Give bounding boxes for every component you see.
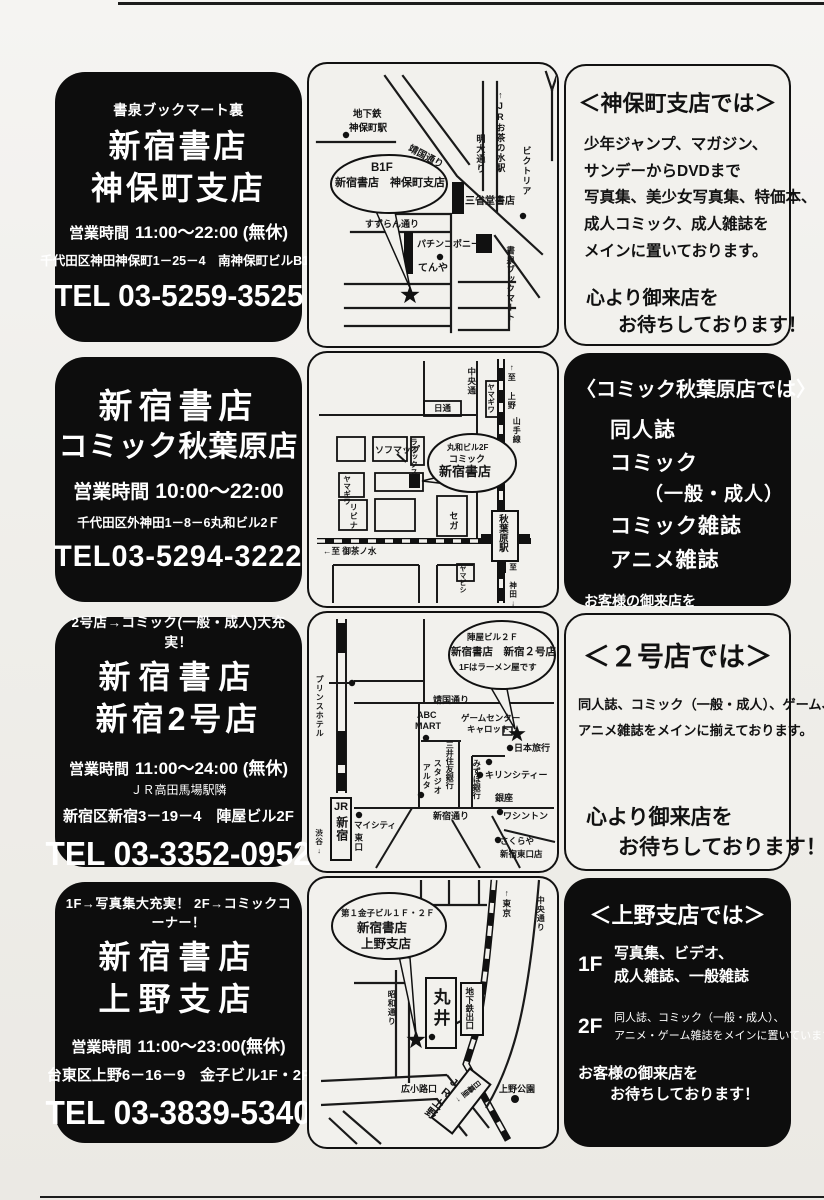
map-label-nittsu: 日通 bbox=[434, 404, 451, 414]
closing-line1: お客様の御来店を bbox=[578, 1062, 779, 1083]
store-card-shinjuku2: 2号店→コミック(一般・成人)大充実！ 新宿書店 新宿2号店 営業時間11:00… bbox=[55, 617, 302, 867]
store-address: 千代田区神田神保町1－25－4 南神保町ビルB1F bbox=[40, 250, 316, 269]
map-label-to-shibuya: 渋谷↓ bbox=[314, 829, 323, 856]
map-balloon-note: 1Fはラーメン屋です bbox=[459, 663, 537, 673]
closing-line1: 心より御来店を bbox=[586, 283, 777, 310]
info-body: 少年ジャンプ、マガジン、 サンデーからDVDまで 写真集、美少女写真集、特価本、… bbox=[578, 132, 777, 265]
store-card-akihabara: 新宿書店 コミック秋葉原店 営業時間10:00～22:00 千代田区外神田1－8… bbox=[55, 357, 302, 602]
map-label-chuo-dori: 中央通 bbox=[466, 367, 476, 396]
map-label-ueno-park: 上野公園 bbox=[499, 1084, 535, 1094]
info-title: ＜上野支店では＞ bbox=[576, 898, 779, 930]
info-line: メインに置いております。 bbox=[584, 239, 777, 266]
info-line: 写真集、美少女写真集、特価本、 bbox=[584, 185, 777, 212]
store-address: 千代田区外神田1－8－6丸和ビル2Ｆ bbox=[77, 512, 280, 531]
map-label-yamagiwa-2: ヤマギワ bbox=[342, 475, 351, 505]
info-line: サンデーからDVDまで bbox=[584, 159, 777, 186]
info-title: 〈コミック秋葉原店では〉 bbox=[576, 373, 779, 402]
store-name-line2: 新宿2号店 bbox=[96, 699, 262, 741]
store-tagline: 書泉ブックマート裏 bbox=[113, 100, 244, 120]
map-label-nihon-ryoko: 日本旅行 bbox=[514, 743, 550, 753]
info-item: コミック bbox=[610, 447, 779, 480]
map-label-suzuran-dori: すずらん通り bbox=[365, 219, 419, 229]
floor2-line: 同人誌、コミック（一般・成人）、 bbox=[614, 1009, 824, 1028]
map-label-shosen-bookmart: 書泉ブックマート bbox=[505, 246, 515, 322]
info-line: 同人誌、コミック（一般・成人）、ゲーム、 bbox=[578, 692, 777, 718]
map-balloon-building: 丸和ビル2F bbox=[447, 443, 488, 452]
store-name-line2: 神保町支店 bbox=[91, 168, 266, 210]
map-label-jr: JR bbox=[334, 801, 348, 814]
map-label-yamagiwa-1: ヤマギワ bbox=[486, 383, 495, 413]
store-hours: 営業時間11:00～22:00 (無休) bbox=[69, 218, 288, 243]
map-balloon-store: 新宿書店 bbox=[439, 465, 491, 480]
map-balloon-store2: 上野支店 bbox=[361, 937, 411, 951]
map-label-akihabara-station: 秋葉原駅 bbox=[496, 514, 507, 552]
map-label-jr-ochanomizu: ↑JRお茶の水駅 bbox=[495, 90, 505, 173]
map-label-pachinko-pony: パチンコポニー bbox=[417, 239, 480, 249]
map-label-tenya: てんや bbox=[418, 263, 448, 275]
store-location-star-icon bbox=[401, 285, 420, 303]
map-label-sanseido: 三省堂書店 bbox=[465, 196, 515, 208]
railway-segments bbox=[337, 623, 346, 791]
floor2-text: 同人誌、コミック（一般・成人）、 アニメ・ゲーム雑誌をメインに置いています。 bbox=[614, 1009, 824, 1046]
map-label-to-kanda: 至 神田↓ bbox=[508, 563, 517, 608]
closing-line2: お待ちしております！ bbox=[586, 831, 777, 861]
map-jimbocho-drawing bbox=[309, 64, 556, 345]
info-item: コミック雑誌 bbox=[610, 510, 779, 543]
map-label-mart: MART bbox=[415, 721, 441, 731]
store-tagline: 2号店→コミック(一般・成人)大充実！ bbox=[61, 611, 296, 651]
map-balloon-building: 第１金子ビル１Ｆ・２Ｆ bbox=[341, 909, 435, 919]
map-label-livina: リビナ bbox=[349, 503, 358, 530]
map-label-sakuraya-2: 新宿東口店 bbox=[500, 850, 543, 860]
store-tel: TEL 03-3352-0952 bbox=[46, 835, 311, 873]
info-card-shinjuku2: ＜２号店では＞ 同人誌、コミック（一般・成人）、ゲーム、 アニメ雑誌をメインに揃… bbox=[564, 613, 791, 871]
hours-label: 営業時間 bbox=[69, 225, 129, 242]
map-label-yamabishi: ヤマビシ bbox=[459, 565, 466, 593]
info-card-jimbocho: ＜神保町支店では＞ 少年ジャンプ、マガジン、 サンデーからDVDまで 写真集、美… bbox=[564, 64, 791, 346]
floor2-line: アニメ・ゲーム雑誌をメインに置いています。 bbox=[614, 1027, 824, 1046]
closing-line2: お待ちしております！ bbox=[578, 1083, 779, 1104]
map-label-shinjuku-dori: 新宿通り bbox=[433, 811, 469, 821]
info-line: 成人コミック、成人雑誌を bbox=[584, 212, 777, 239]
map-balloon-store1: 新宿書店 bbox=[357, 921, 407, 935]
map-balloon-floor: B1F bbox=[371, 162, 393, 175]
info-item: 同人誌 bbox=[610, 414, 779, 447]
store-name-line2: コミック秋葉原店 bbox=[59, 429, 299, 467]
map-label-meidai-dori: 明大通り bbox=[475, 134, 485, 174]
map-ueno: 第１金子ビル１Ｆ・２Ｆ 新宿書店 上野支店 ↑東京 中央通り 昭和通り 丸井 地… bbox=[307, 876, 559, 1149]
floor1-row: 1F 写真集、ビデオ、 成人雑誌、一般雑誌 bbox=[576, 942, 779, 989]
closing-line1: お客様の御来店を bbox=[584, 591, 779, 611]
map-label-washington: ワシントン bbox=[503, 811, 548, 821]
map-label-game-center-1: ゲームセンター bbox=[461, 714, 520, 724]
hours-label: 営業時間 bbox=[69, 761, 129, 778]
map-label-sakuraya-1: さくらや bbox=[500, 837, 534, 847]
hours-label: 営業時間 bbox=[71, 1039, 131, 1056]
hours-value: 11:00～22:00 (無休) bbox=[135, 223, 288, 242]
info-item-list: 同人誌 コミック （一般・成人） コミック雑誌 アニメ雑誌 bbox=[576, 414, 779, 577]
map-balloon-building: 陣屋ビル２Ｆ bbox=[467, 633, 518, 643]
map-label-hirokoji-exit: 広小路口 bbox=[401, 1084, 437, 1094]
map-label-ginza: 銀座 bbox=[495, 793, 513, 803]
map-balloon-comic: コミック bbox=[449, 454, 485, 464]
map-label-mizuho-bank: みずほ銀行 bbox=[472, 759, 481, 799]
floor1-text: 写真集、ビデオ、 成人雑誌、一般雑誌 bbox=[614, 942, 749, 989]
info-item: アニメ雑誌 bbox=[610, 544, 779, 577]
map-label-yamanote-line: 山手線 bbox=[512, 417, 521, 444]
info-title: ＜神保町支店では＞ bbox=[578, 86, 777, 118]
map-label-marui: 丸井 bbox=[430, 988, 450, 1030]
store-name-line1: 新宿書店 bbox=[99, 385, 259, 429]
info-title: ＜２号店では＞ bbox=[578, 635, 777, 674]
info-closing: お客様の御来店を お待ちしております！ bbox=[576, 1062, 779, 1104]
hours-value: 11:00～24:00 (無休) bbox=[135, 759, 288, 778]
map-label-subway-line2: 神保町駅 bbox=[349, 124, 387, 135]
map-jimbocho: 地下鉄 神保町駅 靖国通り 明大通り ↑JRお茶の水駅 ビクトリア B1F 新宿… bbox=[307, 62, 559, 348]
map-label-shinjuku-station: 新宿 bbox=[334, 816, 348, 842]
map-label-subway-exit: 地下鉄出口 bbox=[464, 987, 474, 1030]
store-hours: 営業時間10:00～22:00 bbox=[73, 475, 283, 505]
map-label-alta: アルタ bbox=[422, 763, 431, 790]
store-name-line1: 新宿書店 bbox=[98, 657, 258, 699]
map-label-abc: ABC bbox=[417, 710, 437, 720]
poi-dot-victoria bbox=[520, 213, 526, 219]
store-tel: TEL 03-3839-5340 bbox=[46, 1094, 311, 1132]
floor1-label: 1F bbox=[576, 953, 614, 977]
scan-artifact-top bbox=[118, 2, 824, 5]
map-label-studio: スタジオ bbox=[433, 759, 442, 795]
closing-line1: 心より御来店を bbox=[586, 801, 777, 831]
map-label-laox: ラオックス bbox=[409, 438, 418, 476]
map-label-prince-hotel: プリンスホテル bbox=[315, 675, 324, 738]
store-name-line1: 新宿書店 bbox=[108, 126, 248, 168]
info-body: 同人誌、コミック（一般・成人）、ゲーム、 アニメ雑誌をメインに揃えております。 bbox=[578, 692, 777, 743]
ad-grid: 書泉ブックマート裏 新宿書店 神保町支店 営業時間11:00～22:00 (無休… bbox=[55, 62, 791, 1149]
map-label-victoria: ビクトリア bbox=[521, 146, 531, 196]
store-note: ＪＲ高田馬場駅隣 bbox=[130, 781, 226, 798]
map-label-subway-line1: 地下鉄 bbox=[353, 110, 382, 121]
store-card-ueno: 1F→写真集大充実！ 2F→コミックコーナー！ 新宿書店 上野支店 営業時間11… bbox=[55, 882, 302, 1143]
store-hours: 営業時間11:00～24:00 (無休) bbox=[69, 754, 288, 779]
balloon-tail bbox=[399, 956, 416, 1035]
poi-dot-tenya bbox=[437, 254, 443, 260]
info-card-akihabara: 〈コミック秋葉原店では〉 同人誌 コミック （一般・成人） コミック雑誌 アニメ… bbox=[564, 353, 791, 606]
info-line: アニメ雑誌をメインに揃えております。 bbox=[578, 718, 777, 744]
floor2-label: 2F bbox=[576, 1015, 614, 1039]
store-name-line2: 上野支店 bbox=[98, 979, 258, 1021]
store-card-jimbocho: 書泉ブックマート裏 新宿書店 神保町支店 営業時間11:00～22:00 (無休… bbox=[55, 72, 302, 342]
floor1-line: 写真集、ビデオ、 bbox=[614, 942, 749, 965]
map-label-sega: セガ bbox=[448, 511, 458, 531]
hours-value: 10:00～22:00 bbox=[155, 480, 283, 503]
map-label-chuo-dori: 中央通り bbox=[536, 896, 545, 932]
poi-dots bbox=[349, 680, 513, 843]
map-akihabara: 中央通 ヤマギワ 日通 ↑至 上野 山手線 ソフマップ ラオックス 丸和ビル2F… bbox=[307, 351, 559, 608]
map-label-to-ueno: ↑至 上野 bbox=[507, 363, 516, 410]
store-hours: 営業時間11:00～23:00(無休) bbox=[71, 1032, 285, 1057]
map-label-to-ochanomizu: ←至 御茶ノ水 bbox=[323, 547, 376, 557]
info-card-ueno: ＜上野支店では＞ 1F 写真集、ビデオ、 成人雑誌、一般雑誌 2F 同人誌、コミ… bbox=[564, 878, 791, 1147]
store-tel: TEL03-5294-3222 bbox=[54, 540, 302, 574]
store-tagline: 1F→写真集大充実！ 2F→コミックコーナー！ bbox=[61, 893, 296, 931]
map-label-yasukuni-dori: 靖国通り bbox=[433, 695, 469, 705]
closing-line2: お待ちしております！ bbox=[586, 310, 777, 337]
map-balloon-store: 新宿書店 新宿２号店 bbox=[451, 646, 556, 658]
store-name-line1: 新宿書店 bbox=[98, 937, 258, 979]
map-label-kirin-city: キリンシティー bbox=[485, 770, 547, 780]
scanned-ad-page: { "rows": [ { "store": { "tagline": "書泉ブ… bbox=[0, 0, 824, 1200]
hours-label: 営業時間 bbox=[73, 482, 149, 503]
scan-artifact-bottom bbox=[40, 1196, 824, 1198]
map-label-showa-dori: 昭和通り bbox=[387, 990, 396, 1026]
store-tel: TEL 03-5259-3525 bbox=[54, 278, 303, 314]
map-label-mycity: マイシティ bbox=[354, 821, 396, 831]
store-address: 新宿区新宿3－19－4 陣屋ビル2F bbox=[63, 805, 294, 826]
info-item-sub: （一般・成人） bbox=[610, 480, 779, 510]
map-label-east-exit: 東口 bbox=[353, 833, 363, 852]
info-line: 少年ジャンプ、マガジン、 bbox=[584, 132, 777, 159]
map-label-to-tokyo: ↑東京 bbox=[501, 888, 511, 918]
map-label-mitsui-bank: 三井住友銀行 bbox=[445, 741, 454, 789]
map-label-game-center-2: キャロット bbox=[467, 725, 510, 735]
shop-building bbox=[409, 474, 420, 488]
map-shinjuku2: 陣屋ビル２Ｆ 新宿書店 新宿２号店 1Fはラーメン屋です プリンスホテル 靖国通… bbox=[307, 611, 559, 873]
map-balloon-store: 新宿書店 神保町支店 bbox=[335, 177, 445, 190]
hours-value: 11:00～23:00(無休) bbox=[137, 1037, 285, 1056]
floor1-line: 成人雑誌、一般雑誌 bbox=[614, 965, 749, 988]
store-address: 台東区上野6－16－9 金子ビル1F・2F bbox=[47, 1064, 310, 1085]
info-closing: 心より御来店を お待ちしております！ bbox=[578, 801, 777, 861]
info-closing: 心より御来店を お待ちしております！ bbox=[578, 283, 777, 337]
floor2-row: 2F 同人誌、コミック（一般・成人）、 アニメ・ゲーム雑誌をメインに置いています… bbox=[576, 1009, 779, 1046]
